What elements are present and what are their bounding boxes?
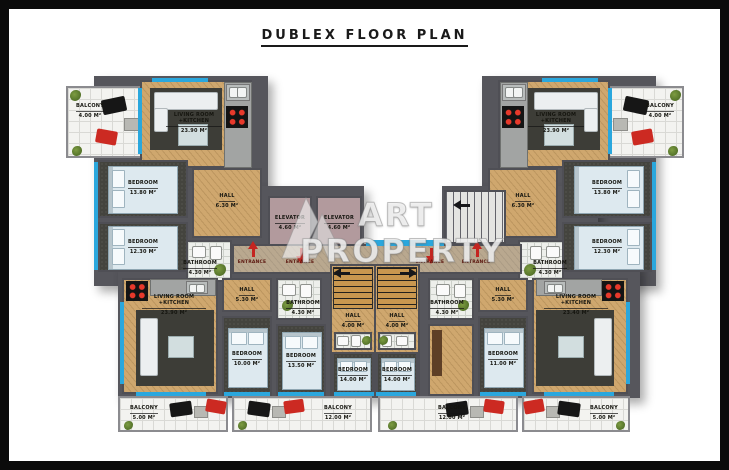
room-label: BALCONY12.00 M² xyxy=(424,402,480,424)
lounge-chair-black xyxy=(557,401,581,418)
room-label: BEDROOM13.80 M² xyxy=(108,172,178,204)
window-glass xyxy=(608,88,612,154)
window-glass xyxy=(334,392,374,396)
cooktop-icon xyxy=(226,106,248,128)
window-glass xyxy=(224,392,270,396)
toilet xyxy=(351,335,361,347)
sofa xyxy=(594,318,612,376)
floor-plan-canvas: DUBLEX FLOOR PLAN BALCONY4.00 M² LIVING … xyxy=(0,0,729,470)
room-label: HALL6.30 M² xyxy=(200,188,254,214)
room-label: BEDROOM10.00 M² xyxy=(224,344,270,374)
kitchen-sink xyxy=(226,84,250,101)
room-label: BEDROOM14.00 M² xyxy=(376,362,418,388)
room-label: LIVING ROOM +KITCHEN23.40 M² xyxy=(544,292,608,318)
toilet xyxy=(300,284,312,298)
coffee-table xyxy=(168,336,194,358)
room-label: LIVING ROOM +KITCHEN23.90 M² xyxy=(528,106,584,140)
window-glass xyxy=(480,392,526,396)
bathroom-sink xyxy=(337,336,349,346)
room-label: HALL4.00 M² xyxy=(330,312,376,330)
room-label: BALCONY4.00 M² xyxy=(66,100,114,122)
kitchen-sink xyxy=(502,84,526,101)
room-label: HALL5.30 M² xyxy=(226,282,268,308)
bathroom-sink xyxy=(192,246,206,258)
watermark-art: ART xyxy=(358,196,434,234)
room-label: BEDROOM13.50 M² xyxy=(278,346,324,376)
wardrobe xyxy=(432,330,442,376)
coffee-table xyxy=(558,336,584,358)
lounge-chair-red xyxy=(283,399,305,415)
room-label: BEDROOM12.30 M² xyxy=(572,232,642,262)
window-glass xyxy=(120,302,124,384)
room-label: BATHROOM4.30 M² xyxy=(288,298,318,318)
stair-direction-arrow xyxy=(400,272,410,275)
watermark-property: PROPERTY xyxy=(300,232,505,270)
room-label: BATHROOM4.30 M² xyxy=(432,298,462,318)
lounge-chair-black xyxy=(247,401,271,418)
entrance-label: ENTRANCE xyxy=(234,261,270,266)
stair-direction-arrow xyxy=(460,204,470,207)
window-glass xyxy=(278,392,324,396)
stair-direction-arrow xyxy=(340,272,350,275)
room-label: HALL5.30 M² xyxy=(482,282,524,308)
toilet xyxy=(454,284,466,298)
room-label: BEDROOM11.00 M² xyxy=(480,344,526,374)
room-label: BALCONY12.00 M² xyxy=(310,402,366,424)
entrance-arrow-up xyxy=(252,248,255,257)
balcony-table xyxy=(613,118,628,131)
window-glass xyxy=(94,162,98,270)
room-label: LIVING ROOM +KITCHEN23.90 M² xyxy=(166,106,222,140)
page-title: DUBLEX FLOOR PLAN xyxy=(0,24,729,47)
room-label: LIVING ROOM +KITCHEN23.90 M² xyxy=(142,292,206,318)
room-label: BATHROOM4.30 M² xyxy=(186,258,214,278)
window-glass xyxy=(138,88,142,154)
room-label: HALL4.00 M² xyxy=(374,312,420,330)
bathroom-sink xyxy=(282,284,296,296)
room-label: BATHROOM4.30 M² xyxy=(536,258,564,278)
room-label: BEDROOM13.80 M² xyxy=(572,172,642,204)
sofa xyxy=(140,318,158,376)
room-label: BEDROOM14.00 M² xyxy=(332,362,374,388)
window-glass xyxy=(626,302,630,384)
room-label: BALCONY5.00 M² xyxy=(122,402,166,424)
window-glass xyxy=(542,78,598,82)
room-label: BALCONY5.00 M² xyxy=(582,402,626,424)
balcony-table xyxy=(124,118,139,131)
sofa-arm xyxy=(584,108,598,132)
window-glass xyxy=(152,78,208,82)
lounge-chair-red xyxy=(483,399,505,415)
bathroom-sink xyxy=(546,246,560,258)
bathroom-sink xyxy=(436,284,450,296)
bathroom-sink xyxy=(396,336,408,346)
window-glass xyxy=(652,162,656,270)
window-glass xyxy=(136,392,206,396)
room-label: BALCONY4.00 M² xyxy=(636,100,684,122)
window-glass xyxy=(376,392,416,396)
room-label: HALL6.30 M² xyxy=(496,188,550,214)
room-label: BEDROOM12.30 M² xyxy=(108,232,178,262)
cooktop-icon xyxy=(502,106,524,128)
window-glass xyxy=(544,392,614,396)
